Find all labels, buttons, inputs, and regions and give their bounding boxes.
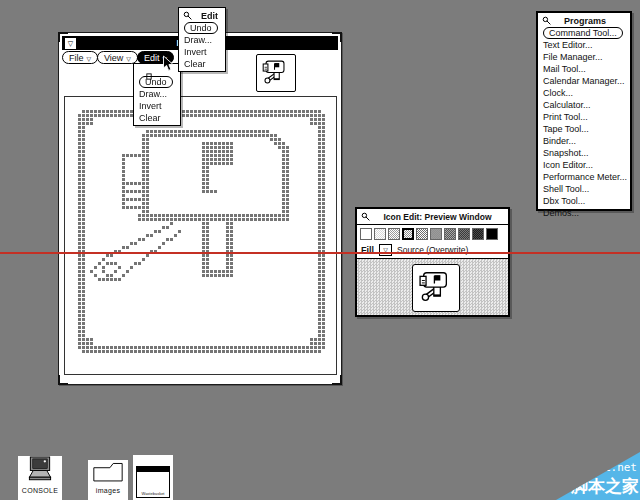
swatch-gray-12[interactable] <box>374 228 386 240</box>
mailbox-icon <box>257 55 293 89</box>
swatch-gray-50[interactable] <box>430 228 442 240</box>
programs-item-command-tool[interactable]: Command Tool... <box>538 27 630 39</box>
pinned-edit-item-draw[interactable]: Draw... <box>179 34 225 46</box>
programs-item-dbx-tool[interactable]: Dbx Tool... <box>538 195 630 207</box>
images-folder-icon[interactable]: images <box>88 460 128 500</box>
pattern-palette <box>357 225 508 242</box>
programs-item-text-editor[interactable]: Text Editor... <box>538 39 630 51</box>
programs-menu-title: Programs <box>552 16 618 26</box>
swatch-black[interactable] <box>486 228 498 240</box>
pinned-menu-title: Edit <box>201 11 218 21</box>
pushpin-icon[interactable] <box>542 16 552 26</box>
resize-corner-icon[interactable] <box>58 375 68 385</box>
programs-item-shell-tool[interactable]: Shell Tool... <box>538 183 630 195</box>
programs-item-icon-editor[interactable]: Icon Editor... <box>538 159 630 171</box>
watermark-site-name: 脚本之家 <box>571 475 639 498</box>
icon-editor-window: ▽ Icon Editor File ▽ View ▽ Edit ▽ <box>58 32 342 385</box>
programs-item-print-tool[interactable]: Print Tool... <box>538 111 630 123</box>
pushpin-icon[interactable] <box>361 212 371 222</box>
console-desktop-icon[interactable]: CONSOLE <box>18 456 62 500</box>
programs-item-file-manager[interactable]: File Manager... <box>538 51 630 63</box>
chevron-down-icon: ▽ <box>126 55 131 62</box>
file-menu-button[interactable]: File ▽ <box>62 51 98 64</box>
view-menu-button[interactable]: View ▽ <box>97 51 138 64</box>
programs-item-snapshot[interactable]: Snapshot... <box>538 147 630 159</box>
chevron-down-icon: ▽ <box>87 55 92 62</box>
icon-thumbnail-box <box>256 54 296 92</box>
edit-menu-item-draw[interactable]: Draw... <box>134 88 180 100</box>
swatch-white[interactable] <box>360 228 372 240</box>
desktop: ▽ Icon Editor File ▽ View ▽ Edit ▽ <box>0 0 640 500</box>
swatch-gray-85[interactable] <box>472 228 484 240</box>
programs-item-calendar-manager[interactable]: Calendar Manager... <box>538 75 630 87</box>
watermark-banner: jb51.net 脚本之家 <box>556 452 640 500</box>
preview-window-title: Icon Edit: Preview Window <box>371 212 504 222</box>
console-icon-label: CONSOLE <box>18 487 62 494</box>
terminal-icon <box>22 456 58 483</box>
edit-menu-item-invert[interactable]: Invert <box>134 100 180 112</box>
resize-corner-icon[interactable] <box>58 32 68 42</box>
preview-window: Icon Edit: Preview Window Fill ▽ Source … <box>355 207 510 317</box>
folder-icon <box>91 460 125 483</box>
pinned-edit-item-invert[interactable]: Invert <box>179 46 225 58</box>
wastebasket-icon-label: Wastebasket <box>137 491 169 496</box>
programs-item-mail-tool[interactable]: Mail Tool... <box>538 63 630 75</box>
programs-item-clock[interactable]: Clock... <box>538 87 630 99</box>
edit-menu-item-clear[interactable]: Clear <box>134 112 180 124</box>
mailbox-icon <box>413 265 457 308</box>
mouse-cursor-icon <box>162 55 174 73</box>
watermark-site: jb51.net <box>584 461 637 474</box>
icon-pixel-canvas[interactable] <box>78 110 326 354</box>
mini-window-icon: Wastebasket <box>136 466 170 498</box>
swatch-gray-60[interactable] <box>444 228 456 240</box>
view-menu-label: View <box>104 53 123 63</box>
annotation-red-line <box>0 252 640 254</box>
canvas-frame <box>64 96 337 375</box>
preview-icon-tile[interactable] <box>412 264 460 312</box>
pinned-edit-menu: Edit UndoDraw...InvertClear <box>178 7 226 72</box>
edit-menu-label: Edit <box>144 53 160 63</box>
programs-item-binder[interactable]: Binder... <box>538 135 630 147</box>
preview-area <box>357 258 508 315</box>
images-icon-label: images <box>88 487 128 494</box>
swatch-gray-30[interactable] <box>402 228 414 240</box>
wastebasket-desktop-icon[interactable]: Wastebasket <box>133 455 173 500</box>
programs-item-performance-meter[interactable]: Performance Meter... <box>538 171 630 183</box>
resize-corner-icon[interactable] <box>332 32 342 42</box>
programs-menu: Programs Command Tool...Text Editor...Fi… <box>536 11 632 211</box>
resize-corner-icon[interactable] <box>332 375 342 385</box>
file-menu-label: File <box>69 53 84 63</box>
swatch-gray-25[interactable] <box>388 228 400 240</box>
swatch-gray-40[interactable] <box>416 228 428 240</box>
pushpin-icon[interactable] <box>183 11 193 21</box>
programs-item-demos[interactable]: Demos... <box>538 207 630 219</box>
swatch-gray-75[interactable] <box>458 228 470 240</box>
programs-item-calculator[interactable]: Calculator... <box>538 99 630 111</box>
pinned-edit-item-clear[interactable]: Clear <box>179 58 225 70</box>
pinned-edit-item-undo[interactable]: Undo <box>179 22 225 34</box>
programs-item-tape-tool[interactable]: Tape Tool... <box>538 123 630 135</box>
edit-menu-item-undo[interactable]: Undo <box>134 76 180 88</box>
